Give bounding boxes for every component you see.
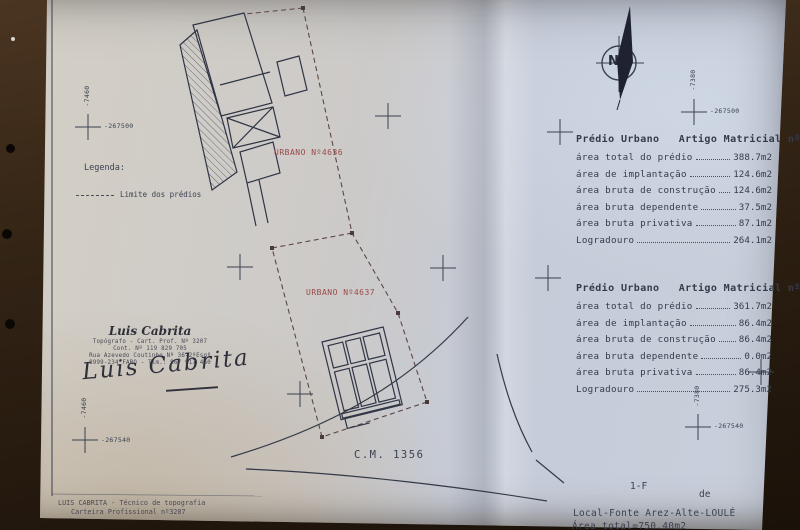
row-label: Logradouro (576, 384, 634, 395)
parcel-label-4636: URBANO Nº4636 (274, 148, 343, 157)
location-label: Local-Fonte Arez-Alte-LOULÉ (573, 508, 736, 519)
table-row: área de implantação124.6m2 (576, 169, 772, 180)
row-value: 124.6m2 (733, 169, 772, 180)
coord-label: -267500 (104, 122, 134, 130)
coord-label: -7460 (83, 80, 91, 112)
row-label: área total do prédio (576, 301, 693, 312)
sheet-reference: 1-F (630, 481, 647, 492)
footer-surveyor-line: LUIS CABRITA - Técnico de topografia (58, 499, 205, 507)
row-value: 86.4m2 (739, 334, 772, 345)
row-label: área de implantação (576, 318, 687, 329)
row-value: 388.7m2 (733, 152, 772, 163)
property-table-4637: Prédio Urbano Artigo Matricial nº4637 ár… (576, 283, 772, 400)
dotted-leader (696, 159, 731, 160)
row-value: 124.6m2 (733, 185, 772, 196)
stamp-name: Luis Cabrita (80, 324, 220, 338)
row-label: área bruta privativa (576, 367, 693, 378)
dotted-leader (719, 341, 736, 342)
north-compass-icon (596, 6, 644, 110)
row-label: área bruta de construção (576, 334, 716, 345)
dotted-leader (696, 225, 736, 226)
row-label: Logradouro (576, 235, 634, 246)
table-row: área bruta de construção124.6m2 (576, 185, 772, 196)
dotted-leader (690, 176, 730, 177)
row-label: área de implantação (576, 169, 687, 180)
table-row: área bruta dependente37.5m2 (576, 202, 772, 213)
row-value: 361.7m2 (733, 301, 772, 312)
dotted-leader (690, 325, 736, 326)
table-title: Prédio Urbano Artigo Matricial nº4636 (576, 134, 772, 145)
row-label: área bruta privativa (576, 218, 693, 229)
legend-dash-sample (76, 195, 114, 196)
table-row: Logradouro264.1m2 (576, 235, 772, 246)
dotted-leader (696, 374, 736, 375)
parcel-label-4637: URBANO Nº4637 (306, 288, 375, 297)
row-value: 86.4m2 (739, 318, 772, 329)
coord-label: -267540 (101, 436, 131, 444)
footer-license-line: Carteira Profissional nº3207 (71, 508, 186, 516)
north-label: N (608, 54, 619, 69)
total-area-label: Área total=750.40m2 (572, 521, 686, 530)
table-title: Prédio Urbano Artigo Matricial nº4637 (576, 283, 772, 294)
dotted-leader (701, 358, 741, 359)
road-lines (231, 317, 564, 501)
property-table-4636: Prédio Urbano Artigo Matricial nº4636 ár… (576, 134, 772, 251)
coord-label: -267500 (710, 107, 740, 115)
row-value: 0.0m2 (744, 351, 772, 362)
row-value: 86.4m2 (739, 367, 772, 378)
coord-label: -267540 (714, 422, 744, 430)
coord-label: -7380 (689, 64, 697, 96)
table-row: área total do prédio388.7m2 (576, 152, 772, 163)
row-value: 275.3m2 (733, 384, 772, 395)
row-label: área total do prédio (576, 152, 693, 163)
table-row: área bruta privativa87.1m2 (576, 218, 772, 229)
coord-label: -7460 (80, 392, 88, 424)
table-row: área bruta privativa86.4m2 (576, 367, 772, 378)
photo-of-survey-document: N Legenda: Limite dos prédios URBANO Nº4… (0, 0, 800, 530)
dotted-leader (637, 391, 730, 392)
table-row: Logradouro275.3m2 (576, 384, 772, 395)
dotted-leader (719, 192, 730, 193)
dotted-leader (701, 209, 735, 210)
parcel-boundary-dashed (245, 8, 427, 437)
table-row: área bruta de construção86.4m2 (576, 334, 772, 345)
road-label: C.M. 1356 (354, 449, 424, 461)
row-value: 37.5m2 (739, 202, 772, 213)
row-label: área bruta dependente (576, 351, 698, 362)
table-row: área bruta dependente0.0m2 (576, 351, 772, 362)
de-label: de (699, 489, 710, 500)
table-row: área de implantação86.4m2 (576, 318, 772, 329)
stamp-line: Topógrafo - Cart. Prof. Nº 3207 (62, 339, 238, 346)
dotted-leader (637, 242, 730, 243)
row-value: 264.1m2 (733, 235, 772, 246)
row-label: área bruta de construção (576, 185, 716, 196)
table-row: área total do prédio361.7m2 (576, 301, 772, 312)
legend-title: Legenda: (84, 163, 125, 173)
legend-item-label: Limite dos prédios (120, 190, 201, 199)
row-label: área bruta dependente (576, 202, 698, 213)
row-value: 87.1m2 (739, 218, 772, 229)
dotted-leader (696, 308, 731, 309)
